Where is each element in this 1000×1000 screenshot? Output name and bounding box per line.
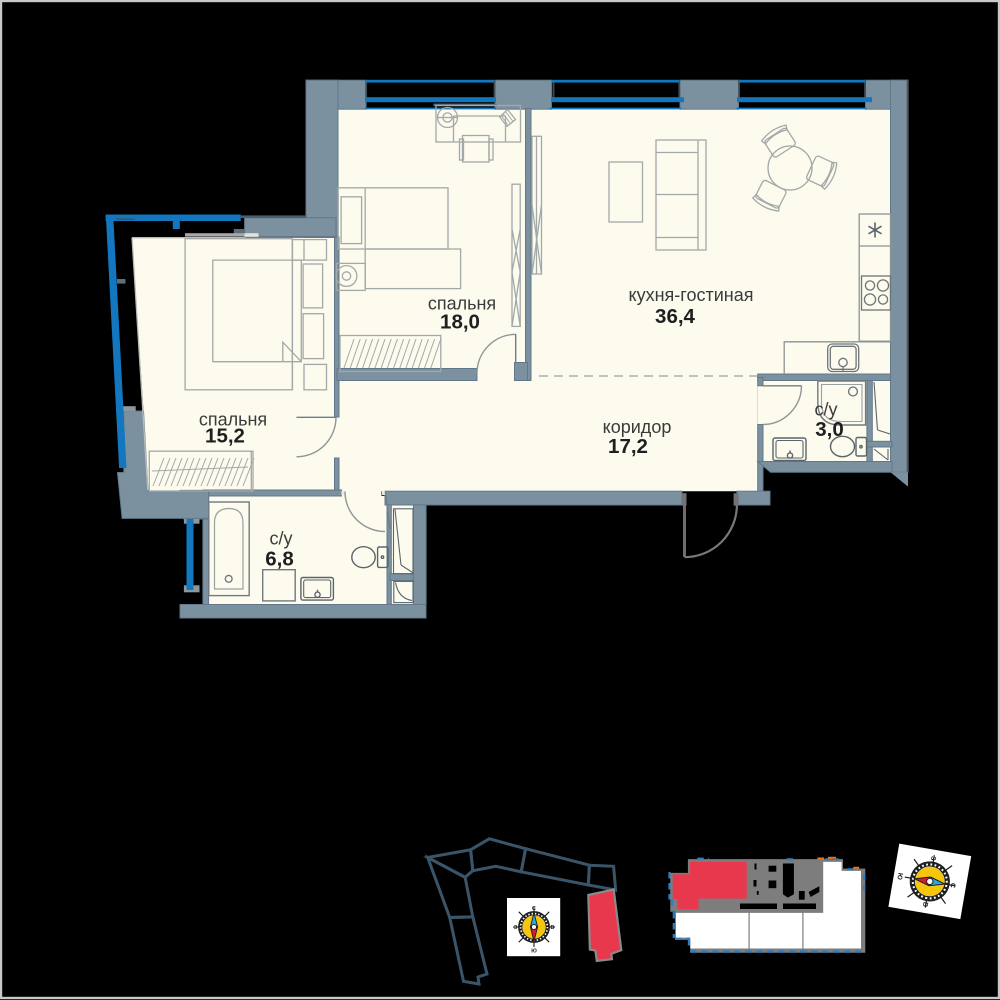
svg-text:кухня-гостиная: кухня-гостиная [629, 285, 754, 305]
svg-text:17,2: 17,2 [608, 435, 648, 458]
svg-text:3,0: 3,0 [815, 418, 844, 441]
svg-text:Ю: Ю [531, 949, 537, 955]
svg-text:С: С [532, 906, 536, 912]
svg-text:В: В [551, 925, 555, 931]
svg-text:с/у: с/у [814, 400, 837, 420]
svg-text:15,2: 15,2 [205, 425, 245, 448]
svg-text:6,8: 6,8 [265, 548, 294, 571]
svg-text:18,0: 18,0 [440, 311, 480, 334]
svg-text:36,4: 36,4 [655, 305, 695, 328]
svg-text:с/у: с/у [269, 529, 292, 549]
svg-text:Ю: Ю [895, 872, 903, 880]
